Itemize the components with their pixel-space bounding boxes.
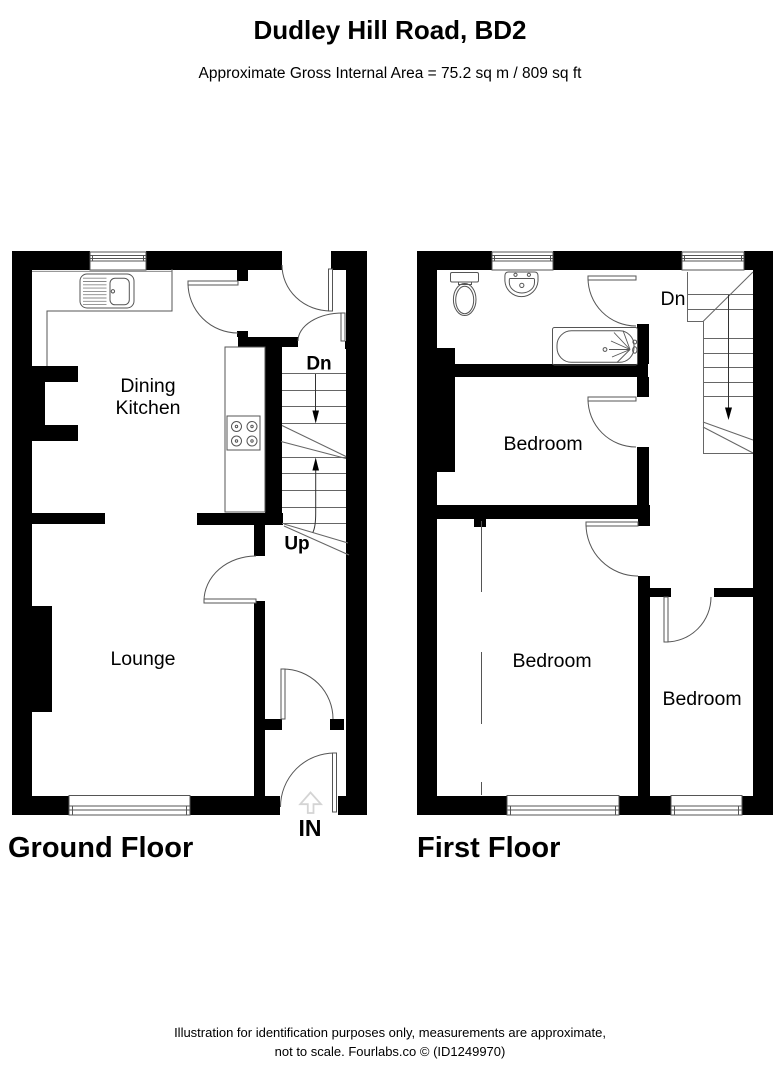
svg-text:Bedroom: Bedroom <box>512 650 591 672</box>
svg-text:Dn: Dn <box>661 288 686 310</box>
svg-text:Approximate Gross Internal Are: Approximate Gross Internal Area = 75.2 s… <box>199 65 583 82</box>
svg-text:Dining: Dining <box>120 375 175 397</box>
svg-text:Kitchen: Kitchen <box>115 397 180 419</box>
svg-text:Bedroom: Bedroom <box>662 688 741 710</box>
svg-text:Bedroom: Bedroom <box>503 433 582 455</box>
svg-text:Up: Up <box>284 534 309 555</box>
svg-text:Lounge: Lounge <box>110 648 175 670</box>
svg-text:IN: IN <box>299 815 322 841</box>
svg-text:not to scale. Fourlabs.co © (I: not to scale. Fourlabs.co © (ID1249970) <box>275 1044 506 1059</box>
svg-text:Ground Floor: Ground Floor <box>8 832 193 864</box>
svg-text:First Floor: First Floor <box>417 832 560 864</box>
svg-text:Illustration for identificatio: Illustration for identification purposes… <box>174 1025 606 1040</box>
svg-text:Dn: Dn <box>306 354 331 375</box>
svg-text:Dudley Hill Road, BD2: Dudley Hill Road, BD2 <box>253 15 526 45</box>
